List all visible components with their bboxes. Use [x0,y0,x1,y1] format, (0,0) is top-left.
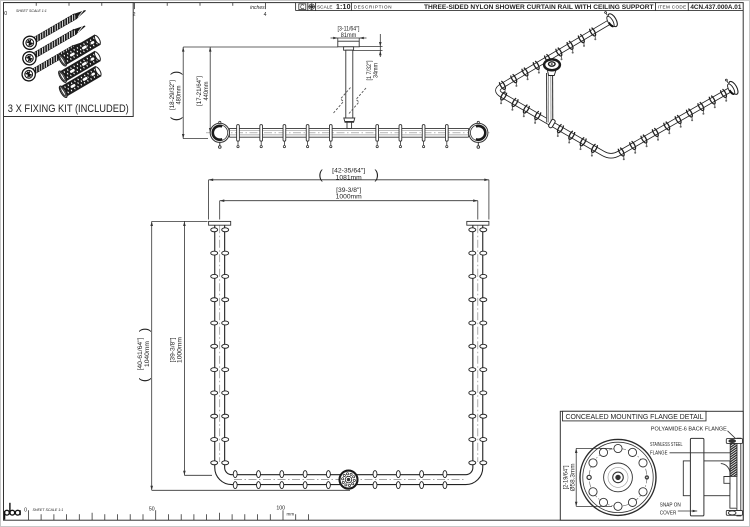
svg-text:1000mm: 1000mm [336,194,362,201]
svg-text:): ) [168,71,183,75]
svg-text:3 X FIXING KIT (INCLUDED): 3 X FIXING KIT (INCLUDED) [8,103,129,115]
svg-text:[1 7/32"]: [1 7/32"] [367,60,373,80]
svg-text:COVER: COVER [660,510,677,516]
svg-text:SHEET SCALE 1:1: SHEET SCALE 1:1 [16,9,47,13]
svg-text:inches: inches [250,5,265,11]
svg-text:FLANGE: FLANGE [650,450,668,456]
svg-text:0: 0 [4,11,7,17]
svg-text:STAINLESS STEEL: STAINLESS STEEL [650,442,683,448]
svg-text:4CN.437.000A.01: 4CN.437.000A.01 [690,4,741,11]
svg-text:DESCRIPTION: DESCRIPTION [354,4,392,9]
svg-text:81mm: 81mm [341,33,357,39]
svg-text:440mm: 440mm [203,82,210,101]
svg-text:50: 50 [149,507,155,513]
svg-text:(: ( [137,377,152,382]
svg-text:(: ( [168,116,183,121]
svg-text:THREE-SIDED NYLON SHOWER CURTA: THREE-SIDED NYLON SHOWER CURTAIN RAIL WI… [424,4,654,11]
svg-text:480mm: 480mm [176,86,183,105]
svg-text:1040mm: 1040mm [144,341,151,367]
svg-text:ITEM CODE: ITEM CODE [658,4,687,9]
svg-text:SCALE: SCALE [317,5,333,10]
svg-text:POLYAMIDE-6 BACK FLANGE: POLYAMIDE-6 BACK FLANGE [651,426,727,432]
svg-text:Ø58.3mm: Ø58.3mm [570,463,576,491]
svg-text:CONCEALED MOUNTING FLANGE DETA: CONCEALED MOUNTING FLANGE DETAIL [566,414,704,421]
svg-text:mm: mm [287,512,295,517]
svg-text:1000mm: 1000mm [177,337,184,363]
svg-text:): ) [375,167,379,182]
svg-text:0: 0 [24,508,27,514]
svg-text:SNAP ON: SNAP ON [660,503,681,509]
svg-text:C: C [300,5,305,11]
svg-text:34mm: 34mm [374,63,380,78]
svg-text:1081mm: 1081mm [336,174,362,181]
svg-text:[2-19/64"]: [2-19/64"] [563,465,569,489]
svg-text:): ) [137,328,152,332]
svg-text:4: 4 [264,12,267,18]
svg-text:(: ( [319,167,324,182]
svg-text:100: 100 [276,506,285,512]
svg-text:[3-11/64"]: [3-11/64"] [338,26,360,32]
svg-text:SHEET SCALE 1:1: SHEET SCALE 1:1 [33,508,64,512]
svg-text:1:10: 1:10 [336,4,351,11]
